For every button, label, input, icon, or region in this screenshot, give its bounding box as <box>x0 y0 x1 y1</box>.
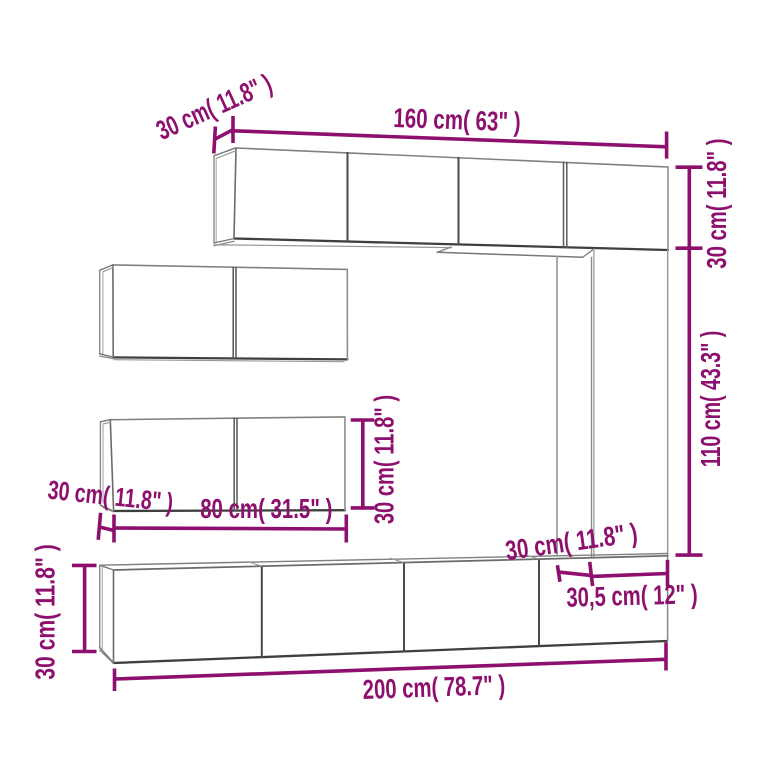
svg-text:80 cm( 31.5" ): 80 cm( 31.5" ) <box>200 494 332 525</box>
svg-text:30 cm( 11.8" ): 30 cm( 11.8" ) <box>370 395 401 524</box>
svg-text:30,5 cm( 12" ): 30,5 cm( 12" ) <box>566 579 698 613</box>
svg-text:110 cm( 43.3" ): 110 cm( 43.3" ) <box>696 331 727 468</box>
svg-text:160 cm( 63" ): 160 cm( 63" ) <box>393 103 521 138</box>
svg-text:30 cm( 11.8" ): 30 cm( 11.8" ) <box>702 139 733 269</box>
svg-text:200 cm( 78.7" ): 200 cm( 78.7" ) <box>362 670 506 706</box>
svg-text:30 cm( 11.8" ): 30 cm( 11.8" ) <box>31 544 61 679</box>
